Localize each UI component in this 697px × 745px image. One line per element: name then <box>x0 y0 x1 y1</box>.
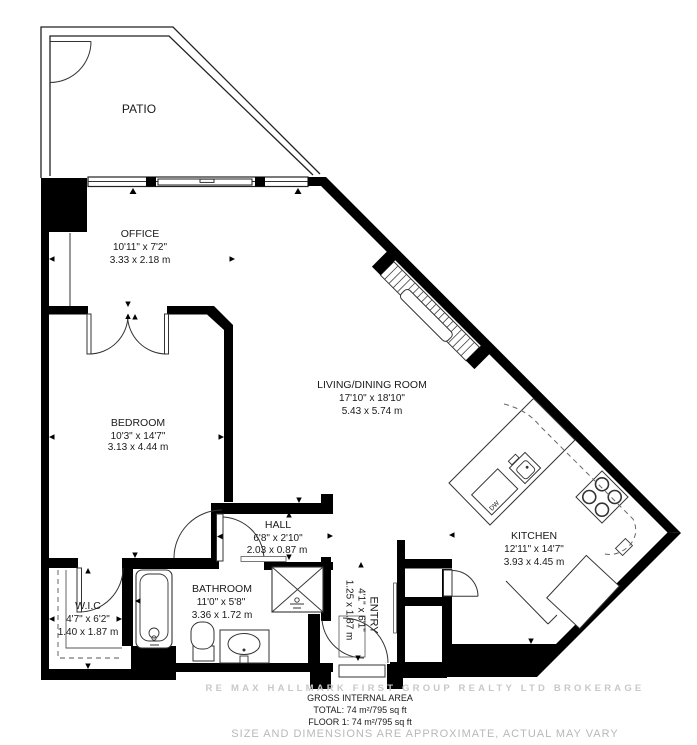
svg-text:11'0" x 5'8": 11'0" x 5'8" <box>197 597 246 608</box>
svg-text:4'1" x 6'1": 4'1" x 6'1" <box>356 588 367 632</box>
svg-text:5.43 x 5.74 m: 5.43 x 5.74 m <box>342 406 403 417</box>
svg-text:PATIO: PATIO <box>122 102 156 116</box>
svg-text:BATHROOM: BATHROOM <box>192 583 252 595</box>
svg-text:10'3" x 14'7": 10'3" x 14'7" <box>111 431 166 442</box>
svg-text:3.36 x 1.72 m: 3.36 x 1.72 m <box>192 610 253 621</box>
svg-text:TOTAL: 74 m²/795 sq ft: TOTAL: 74 m²/795 sq ft <box>313 705 407 715</box>
svg-text:LIVING/DINING ROOM: LIVING/DINING ROOM <box>317 379 427 391</box>
svg-text:4'7" x 6'2": 4'7" x 6'2" <box>66 614 110 625</box>
svg-text:RE MAX HALLMARK FIRST GROUP RE: RE MAX HALLMARK FIRST GROUP REALTY LTD B… <box>206 683 645 694</box>
svg-text:GROSS INTERNAL AREA: GROSS INTERNAL AREA <box>307 693 413 703</box>
svg-text:1.40 x 1.87 m: 1.40 x 1.87 m <box>58 627 119 638</box>
svg-text:10'11" x 7'2": 10'11" x 7'2" <box>113 242 168 253</box>
svg-text:W.I.C: W.I.C <box>75 600 101 612</box>
svg-text:ENTRY: ENTRY <box>368 596 380 634</box>
svg-text:SIZE AND DIMENSIONS ARE APPROX: SIZE AND DIMENSIONS ARE APPROXIMATE, ACT… <box>231 728 618 740</box>
svg-text:OFFICE: OFFICE <box>121 228 160 240</box>
svg-text:3.93 x 4.45 m: 3.93 x 4.45 m <box>504 557 565 568</box>
svg-text:12'11" x 14'7": 12'11" x 14'7" <box>504 544 564 555</box>
svg-text:6'8" x 2'10": 6'8" x 2'10" <box>253 533 303 544</box>
svg-text:3.33 x 2.18 m: 3.33 x 2.18 m <box>110 255 171 266</box>
svg-text:1.25 x 1.87 m: 1.25 x 1.87 m <box>344 580 355 641</box>
svg-text:3.13 x 4.44 m: 3.13 x 4.44 m <box>108 442 169 453</box>
svg-text:17'10" x 18'10": 17'10" x 18'10" <box>339 393 405 404</box>
svg-text:KITCHEN: KITCHEN <box>511 530 557 542</box>
svg-text:2.03 x 0.87 m: 2.03 x 0.87 m <box>247 545 308 556</box>
svg-text:BEDROOM: BEDROOM <box>111 417 165 429</box>
svg-text:FLOOR 1: 74 m²/795 sq ft: FLOOR 1: 74 m²/795 sq ft <box>308 717 412 727</box>
svg-text:HALL: HALL <box>265 519 291 531</box>
